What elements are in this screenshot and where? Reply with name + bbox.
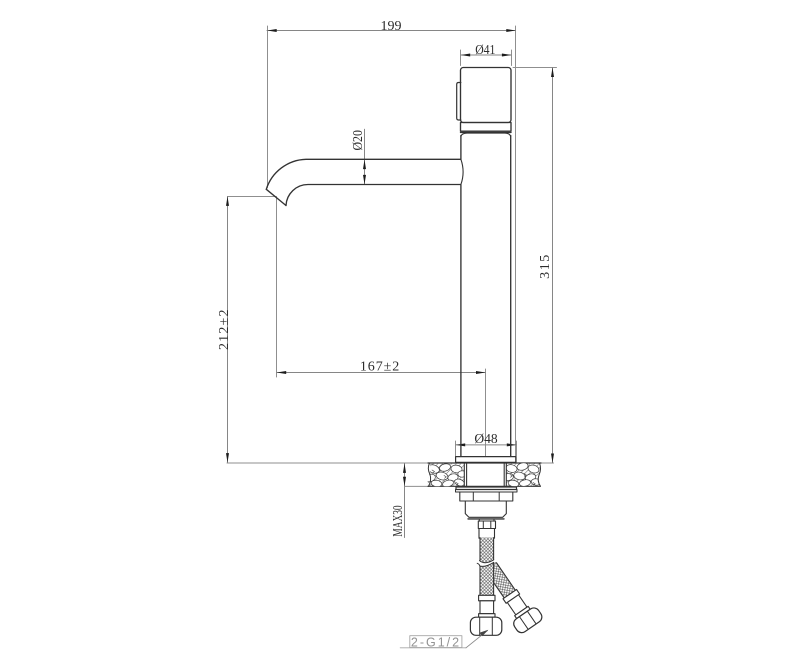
svg-text:Ø41: Ø41 — [475, 41, 495, 57]
svg-text:MAX30: MAX30 — [389, 505, 405, 536]
svg-text:Ø48: Ø48 — [474, 431, 497, 446]
svg-text:212±2: 212±2 — [217, 308, 232, 350]
svg-text:Ø20: Ø20 — [349, 130, 365, 150]
svg-text:199: 199 — [381, 19, 402, 34]
svg-text:167±2: 167±2 — [360, 360, 400, 375]
svg-text:315: 315 — [538, 253, 553, 279]
svg-text:2-G1/2: 2-G1/2 — [411, 635, 461, 649]
